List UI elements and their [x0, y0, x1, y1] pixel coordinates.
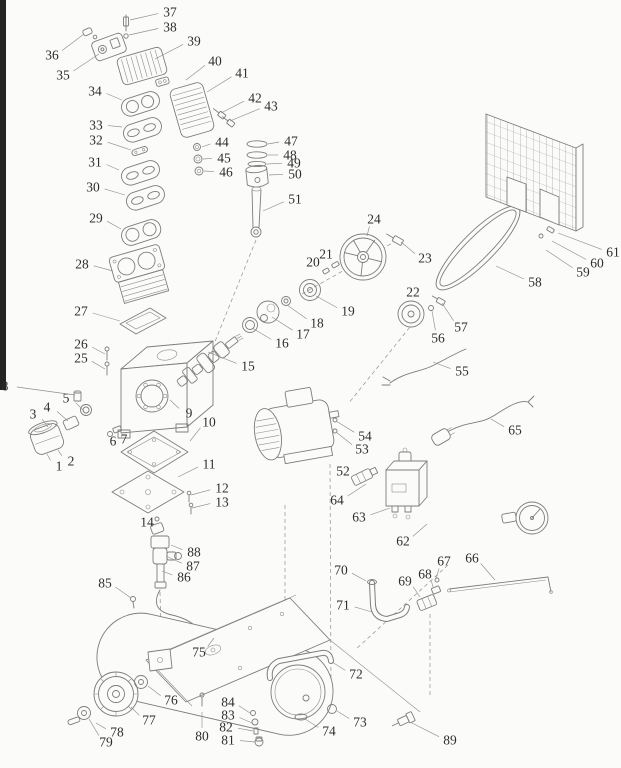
- scanned-parts-diagram-page: 1234567891011121314151617181920212223242…: [0, 0, 621, 768]
- leader-line-79: [89, 719, 99, 736]
- leader-line-13: [192, 504, 210, 508]
- part-52-fitting: [351, 465, 379, 485]
- part-label-24: 24: [367, 212, 381, 227]
- leader-line-37: [130, 14, 158, 20]
- part-53-motor: [248, 383, 345, 468]
- leader-line-12: [191, 490, 210, 495]
- part-8-breather: [74, 391, 81, 402]
- part-58-belt: [426, 196, 529, 299]
- part-42-43-screws: [212, 107, 235, 128]
- leader-line-49: [267, 163, 282, 164]
- part-label-55: 55: [455, 364, 469, 379]
- diagram-canvas: 1234567891011121314151617181920212223242…: [0, 0, 621, 768]
- part-label-63: 63: [352, 510, 366, 525]
- leader-line-23: [401, 242, 415, 254]
- part-label-81: 81: [221, 733, 235, 748]
- part-label-23: 23: [418, 251, 432, 266]
- part-label-50: 50: [288, 167, 302, 182]
- leader-line-77: [131, 707, 139, 715]
- part-34-head-gasket: [119, 89, 162, 118]
- part-label-40: 40: [208, 54, 222, 69]
- leader-line-17: [272, 317, 293, 330]
- part-label-3: 3: [30, 407, 37, 422]
- leader-line-1: [47, 454, 51, 460]
- part-label-65: 65: [508, 423, 522, 438]
- part-50-piston: [245, 164, 268, 188]
- part-30-valve-plate: [124, 183, 167, 212]
- leader-line-27: [93, 313, 120, 321]
- leader-line-30: [105, 189, 125, 195]
- leader-line-35: [73, 54, 99, 71]
- part-60-61-guard-screws: [539, 226, 555, 238]
- part-label-34: 34: [88, 84, 102, 99]
- leader-line-50: [269, 174, 283, 175]
- leader-line-63: [371, 508, 391, 515]
- part-65-power-cord: [430, 396, 534, 447]
- part-label-68: 68: [418, 567, 432, 582]
- leader-line-16: [252, 328, 271, 339]
- part-63-pressure-switch: [386, 448, 427, 519]
- part-label-22: 22: [406, 285, 420, 300]
- part-label-17: 17: [296, 327, 310, 342]
- leader-line-45: [203, 158, 212, 159]
- leader-line-82: [238, 728, 253, 731]
- part-label-58: 58: [528, 275, 542, 290]
- part-10-gasket: [121, 431, 188, 473]
- part-label-71: 71: [336, 598, 350, 613]
- part-31-valve-plate: [119, 158, 162, 187]
- part-33-valve-plate: [121, 115, 164, 144]
- left-edge-scan-artifact: [0, 0, 6, 390]
- leader-line-54: [336, 421, 354, 432]
- leader-line-2: [58, 450, 62, 456]
- leader-line-42: [221, 101, 244, 113]
- part-label-43: 43: [264, 99, 278, 114]
- part-label-87: 87: [186, 559, 200, 574]
- leader-line-44: [202, 144, 210, 147]
- leader-line-38: [129, 29, 158, 36]
- part-label-62: 62: [396, 534, 410, 549]
- leader-line-68: [431, 581, 433, 587]
- leader-line-78: [96, 723, 106, 729]
- part-label-66: 66: [465, 551, 479, 566]
- part-32-reed-valve: [131, 146, 148, 157]
- part-18-washer: [282, 297, 291, 306]
- part-label-59: 59: [576, 265, 590, 280]
- part-22-motor-pulley: [398, 301, 424, 327]
- tank-end-cap: [271, 665, 325, 719]
- leader-line-5: [76, 403, 84, 411]
- leader-line-41: [207, 77, 232, 92]
- leader-line-65: [491, 419, 504, 427]
- leader-line-39: [155, 44, 183, 59]
- part-label-30: 30: [86, 180, 100, 195]
- part-14-elbow: [155, 517, 159, 521]
- part-label-15: 15: [241, 359, 255, 374]
- part-29-cylinder-gasket: [119, 217, 163, 247]
- part-label-6: 6: [110, 434, 117, 449]
- leader-line-88: [171, 545, 183, 550]
- part-label-61: 61: [606, 245, 620, 260]
- leader-line-53: [336, 432, 352, 445]
- part-label-69: 69: [398, 574, 412, 589]
- leader-line-29: [107, 221, 121, 229]
- leader-line-26: [92, 347, 105, 354]
- part-19-hub: [300, 280, 321, 301]
- leader-line-31: [106, 165, 119, 171]
- part-label-16: 16: [275, 336, 289, 351]
- part-label-32: 32: [89, 133, 103, 148]
- part-67-screw: [435, 578, 439, 582]
- leader-line-51: [263, 202, 284, 211]
- part-label-35: 35: [56, 68, 70, 83]
- part-44-45-46-valve-parts: [194, 144, 204, 176]
- part-label-7: 7: [121, 432, 128, 447]
- part-label-67: 67: [437, 554, 451, 569]
- part-label-83: 83: [221, 708, 235, 723]
- part-62-pressure-gauge: [501, 502, 548, 534]
- part-51-connecting-rod: [251, 187, 261, 237]
- leader-line-62: [413, 524, 427, 536]
- part-54-motor-bolts: [333, 418, 337, 433]
- leader-line-36: [62, 34, 84, 51]
- part-label-85: 85: [98, 576, 112, 591]
- part-77-wheel: [94, 672, 138, 716]
- part-label-12: 12: [215, 481, 229, 496]
- leader-line-72: [332, 662, 345, 670]
- leader-line-33: [108, 126, 122, 127]
- part-55-wire: [382, 349, 466, 385]
- part-36-bolt: [82, 27, 97, 39]
- leader-line-60: [552, 241, 586, 260]
- leader-line-61: [558, 233, 602, 249]
- part-label-44: 44: [215, 135, 229, 150]
- part-85-bolt: [131, 597, 136, 609]
- part-label-57: 57: [454, 320, 468, 335]
- part-label-73: 73: [353, 715, 367, 730]
- part-20-21-keys: [322, 261, 339, 274]
- leader-line-4: [57, 411, 68, 421]
- part-label-26: 26: [74, 337, 88, 352]
- part-label-45: 45: [217, 151, 231, 166]
- leader-line-57: [442, 303, 454, 321]
- part-label-14: 14: [140, 515, 154, 530]
- part-59-belt-guard: [486, 114, 583, 238]
- leader-line-89: [412, 723, 439, 737]
- part-label-74: 74: [322, 724, 336, 739]
- part-label-46: 46: [219, 165, 233, 180]
- part-24-flywheel: [340, 234, 386, 280]
- part-label-70: 70: [334, 563, 348, 578]
- leader-line-66: [481, 564, 495, 581]
- leader-line-73: [337, 711, 349, 719]
- part-label-18: 18: [310, 316, 324, 331]
- part-label-42: 42: [248, 91, 262, 106]
- part-56-57-pulley-screw: [429, 294, 446, 310]
- part-label-1: 1: [56, 459, 63, 474]
- part-37-screw: [124, 15, 129, 38]
- part-68-nut: [431, 586, 441, 595]
- part-label-88: 88: [187, 545, 201, 560]
- part-label-28: 28: [75, 257, 89, 272]
- leader-line-19: [316, 296, 337, 308]
- part-75-tank-assembly: [88, 595, 342, 744]
- leader-line-47: [268, 142, 279, 144]
- part-label-31: 31: [88, 155, 102, 170]
- part-label-9: 9: [186, 406, 193, 421]
- part-label-5: 5: [63, 391, 70, 406]
- part-label-10: 10: [202, 415, 216, 430]
- part-label-29: 29: [89, 211, 103, 226]
- part-label-52: 52: [336, 464, 350, 479]
- part-label-47: 47: [284, 134, 298, 149]
- part-label-77: 77: [142, 713, 156, 728]
- part-label-79: 79: [99, 735, 113, 750]
- part-label-38: 38: [163, 20, 177, 35]
- part-label-89: 89: [443, 733, 457, 748]
- part-1-air-filter: [27, 418, 65, 456]
- leader-line-43: [230, 109, 260, 121]
- part-66-unloader-tube: [448, 577, 553, 594]
- part-label-27: 27: [74, 304, 88, 319]
- part-label-21: 21: [319, 247, 333, 262]
- part-label-20: 20: [306, 255, 320, 270]
- part-26-25-screws: [105, 347, 109, 375]
- part-label-2: 2: [68, 454, 75, 469]
- leader-line-40: [186, 65, 205, 80]
- leader-line-25: [92, 361, 105, 369]
- leader-line-28: [94, 266, 113, 271]
- part-27-base-gasket: [120, 308, 166, 334]
- leader-line-71: [355, 607, 372, 612]
- part-23-flywheel-bolt: [385, 231, 404, 245]
- part-label-80: 80: [195, 729, 209, 744]
- part-label-37: 37: [163, 5, 177, 20]
- leader-line-59: [546, 250, 573, 268]
- part-label-56: 56: [431, 331, 445, 346]
- part-38-washer: [124, 34, 128, 38]
- part-label-84: 84: [221, 695, 235, 710]
- leader-line-10: [190, 428, 201, 441]
- part-label-75: 75: [192, 645, 206, 660]
- part-4-elbow: [63, 416, 80, 431]
- leader-line-11: [178, 467, 198, 477]
- part-label-39: 39: [187, 34, 201, 49]
- part-28-cylinder: [108, 244, 171, 304]
- part-label-36: 36: [45, 48, 59, 63]
- part-47-48-49-piston-rings: [247, 141, 267, 167]
- leader-line-81: [240, 741, 255, 742]
- part-label-64: 64: [330, 493, 344, 508]
- leader-line-32: [108, 142, 132, 150]
- part-11-mount-plate: [112, 471, 184, 513]
- part-41-cylinder-head: [169, 81, 215, 138]
- leader-line-67: [436, 568, 439, 579]
- part-5-seal-ring: [81, 405, 92, 416]
- leader-line-85: [115, 587, 131, 598]
- leader-line-58: [496, 266, 524, 279]
- part-label-33: 33: [89, 118, 103, 133]
- leader-line-34: [106, 94, 122, 101]
- leader-line-70: [352, 573, 366, 581]
- leader-line-64: [348, 484, 367, 496]
- part-label-4: 4: [44, 400, 51, 415]
- part-89-drain-cock: [390, 711, 415, 730]
- part-label-8: 8: [2, 379, 9, 394]
- leader-line-18: [287, 305, 307, 319]
- part-label-72: 72: [349, 667, 363, 682]
- part-label-25: 25: [74, 351, 88, 366]
- part-label-60: 60: [590, 256, 604, 271]
- part-label-13: 13: [215, 495, 229, 510]
- leader-line-46: [204, 171, 214, 172]
- part-78-axle-pin: [67, 716, 80, 725]
- part-label-51: 51: [288, 192, 302, 207]
- part-label-76: 76: [164, 693, 178, 708]
- part-label-41: 41: [235, 66, 249, 81]
- leader-line-55: [433, 362, 451, 369]
- part-label-53: 53: [355, 442, 369, 457]
- wheel-bracket: [148, 649, 172, 671]
- leader-line-56: [432, 311, 435, 330]
- part-label-11: 11: [203, 457, 216, 472]
- part-label-19: 19: [341, 304, 355, 319]
- part-40-clip: [155, 77, 169, 87]
- head-stack: [82, 15, 171, 375]
- part-label-54: 54: [358, 429, 372, 444]
